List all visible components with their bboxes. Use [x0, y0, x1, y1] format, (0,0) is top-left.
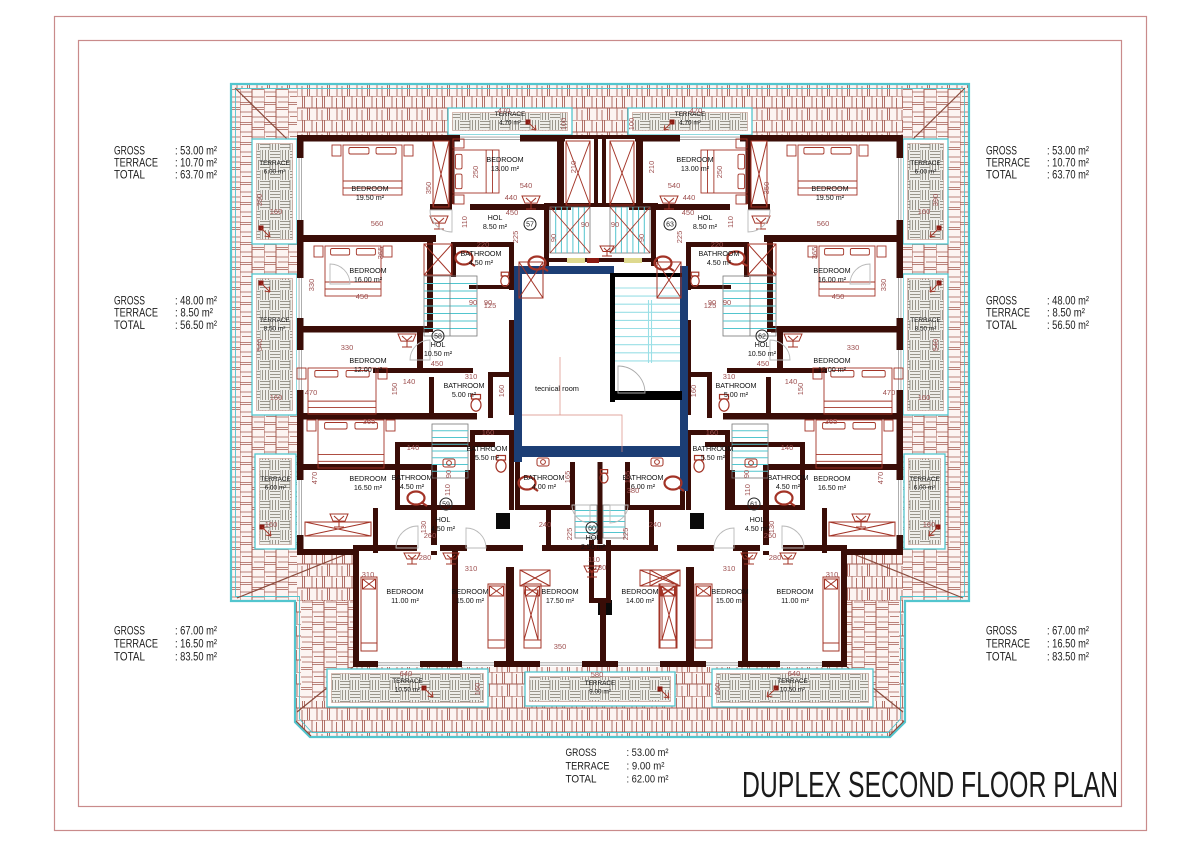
svg-text:BEDROOM: BEDROOM: [711, 587, 748, 596]
svg-text:5.00 m²: 5.00 m²: [724, 390, 749, 399]
svg-text:450: 450: [682, 208, 695, 217]
svg-text:470: 470: [876, 472, 885, 485]
svg-text:TERRACE: TERRACE: [259, 317, 290, 324]
svg-text:110: 110: [443, 484, 452, 496]
svg-text:640: 640: [400, 669, 413, 678]
svg-text:BEDROOM: BEDROOM: [676, 155, 713, 164]
svg-text:540: 540: [931, 339, 940, 352]
svg-text:160: 160: [713, 683, 722, 696]
svg-text:BATHROOM: BATHROOM: [693, 444, 734, 453]
svg-text:90: 90: [484, 298, 492, 307]
svg-text:110: 110: [726, 216, 735, 228]
svg-text:TOTAL: TOTAL: [566, 774, 597, 786]
svg-text:365: 365: [363, 417, 376, 426]
svg-text:220: 220: [477, 240, 490, 249]
svg-text:8.50 m²: 8.50 m²: [264, 326, 286, 333]
svg-text:4.50 m²: 4.50 m²: [707, 258, 732, 267]
svg-text:390: 390: [255, 194, 264, 207]
svg-text:: 9.00 m²: : 9.00 m²: [627, 760, 665, 772]
svg-text:11.00 m²: 11.00 m²: [391, 596, 419, 605]
svg-text:310: 310: [723, 372, 736, 381]
svg-text:240: 240: [539, 520, 552, 529]
svg-text:100: 100: [627, 118, 636, 131]
svg-text:160: 160: [473, 683, 482, 696]
svg-text:BEDROOM: BEDROOM: [351, 184, 388, 193]
svg-text:280: 280: [419, 553, 432, 562]
svg-text:540: 540: [520, 181, 533, 190]
svg-text:8.50 m²: 8.50 m²: [483, 222, 508, 231]
svg-text:16.50 m²: 16.50 m²: [354, 483, 383, 492]
svg-text:310: 310: [826, 570, 839, 579]
svg-text:HOL: HOL: [488, 213, 503, 222]
svg-text:16.50 m²: 16.50 m²: [818, 483, 847, 492]
svg-text:470: 470: [690, 106, 703, 115]
svg-text:BEDROOM: BEDROOM: [541, 587, 578, 596]
svg-text:15.00 m²: 15.00 m²: [456, 596, 485, 605]
svg-text:5.50 m²: 5.50 m²: [701, 453, 726, 462]
svg-text:5.00 m²: 5.00 m²: [452, 390, 477, 399]
svg-text:63: 63: [666, 222, 674, 229]
svg-text:350: 350: [424, 182, 433, 195]
svg-text:: 16.50 m²: : 16.50 m²: [175, 637, 217, 651]
svg-text:440: 440: [505, 193, 518, 202]
svg-text:4.50 m²: 4.50 m²: [400, 482, 425, 491]
svg-text:440: 440: [683, 193, 696, 202]
svg-text:540: 540: [668, 181, 681, 190]
svg-text:GROSS: GROSS: [986, 624, 1017, 638]
svg-text:: 67.00 m²: : 67.00 m²: [175, 624, 217, 638]
svg-text:BATHROOM: BATHROOM: [461, 249, 502, 258]
svg-text:450: 450: [832, 292, 845, 301]
svg-text:140: 140: [403, 377, 416, 386]
svg-text:225: 225: [621, 528, 630, 541]
svg-text:TERRACE: TERRACE: [259, 160, 290, 167]
svg-text:BATHROOM: BATHROOM: [444, 381, 485, 390]
svg-text:2.50 m²: 2.50 m²: [581, 542, 606, 551]
svg-text:4.50 m²: 4.50 m²: [469, 258, 494, 267]
svg-text:GROSS: GROSS: [566, 747, 597, 759]
svg-text:110: 110: [460, 216, 469, 228]
svg-text:160: 160: [497, 385, 506, 398]
svg-text:10.50 m²: 10.50 m²: [748, 349, 777, 358]
svg-text:160: 160: [918, 393, 931, 402]
svg-text:450: 450: [506, 208, 519, 217]
svg-text:: 67.00 m²: : 67.00 m²: [1047, 624, 1089, 638]
svg-text:13.00 m²: 13.00 m²: [491, 164, 520, 173]
svg-text:BATHROOM: BATHROOM: [524, 473, 565, 482]
svg-text:TOTAL: TOTAL: [986, 318, 1017, 332]
svg-text:310: 310: [362, 570, 375, 579]
svg-text:240: 240: [649, 520, 662, 529]
svg-text:BEDROOM: BEDROOM: [813, 266, 850, 275]
svg-text:12.00 m²: 12.00 m²: [354, 365, 383, 374]
svg-text:450: 450: [431, 359, 444, 368]
svg-text:140: 140: [407, 443, 420, 452]
svg-text:: 56.50 m²: : 56.50 m²: [1047, 318, 1089, 332]
svg-text:150: 150: [390, 383, 399, 396]
svg-text:DUPLEX SECOND FLOOR PLAN: DUPLEX SECOND FLOOR PLAN: [742, 764, 1118, 805]
svg-text:BATHROOM: BATHROOM: [467, 444, 508, 453]
svg-text:BATHROOM: BATHROOM: [699, 249, 740, 258]
svg-text:BEDROOM: BEDROOM: [811, 184, 848, 193]
svg-text:4.70 m²: 4.70 m²: [679, 120, 701, 127]
svg-text:BEDROOM: BEDROOM: [349, 356, 386, 365]
svg-text:: 63.70 m²: : 63.70 m²: [1047, 168, 1089, 182]
svg-text:6.00 m²: 6.00 m²: [915, 169, 937, 176]
svg-text:90: 90: [637, 234, 646, 242]
svg-text:310: 310: [465, 372, 478, 381]
svg-text:BEDROOM: BEDROOM: [451, 587, 488, 596]
svg-text:BEDROOM: BEDROOM: [349, 474, 386, 483]
svg-text:130: 130: [767, 521, 776, 534]
svg-text:TERRACE: TERRACE: [909, 476, 940, 483]
svg-text:160: 160: [270, 393, 283, 402]
svg-text:TERRACE: TERRACE: [566, 760, 610, 772]
svg-text:BEDROOM: BEDROOM: [776, 587, 813, 596]
svg-text:BEDROOM: BEDROOM: [813, 474, 850, 483]
svg-text:160: 160: [270, 207, 283, 216]
svg-text:TOTAL: TOTAL: [114, 650, 145, 664]
svg-text:TERRACE: TERRACE: [777, 678, 808, 685]
svg-text:560: 560: [371, 219, 384, 228]
svg-text:165: 165: [563, 471, 572, 484]
svg-text:12.00 m²: 12.00 m²: [818, 365, 847, 374]
svg-text:10.50 m²: 10.50 m²: [424, 349, 453, 358]
svg-text:BEDROOM: BEDROOM: [813, 356, 850, 365]
svg-text:: 83.50 m²: : 83.50 m²: [1047, 650, 1089, 664]
svg-text:61: 61: [750, 502, 758, 509]
svg-text:365: 365: [825, 417, 838, 426]
svg-text:390: 390: [931, 194, 940, 207]
svg-text:350: 350: [762, 182, 771, 195]
svg-text:150: 150: [796, 383, 805, 396]
svg-text:210: 210: [647, 161, 656, 174]
svg-text:225: 225: [511, 231, 520, 244]
svg-text:: 83.50 m²: : 83.50 m²: [175, 650, 217, 664]
svg-text:TERRACE: TERRACE: [910, 317, 941, 324]
svg-text:17.50 m²: 17.50 m²: [546, 596, 575, 605]
svg-text:100: 100: [559, 118, 568, 131]
svg-text:tecnical room: tecnical room: [535, 384, 579, 393]
svg-text:: 53.00 m²: : 53.00 m²: [627, 747, 669, 759]
svg-text:6.00 m²: 6.00 m²: [264, 169, 286, 176]
svg-text:450: 450: [356, 292, 369, 301]
svg-text:BATHROOM: BATHROOM: [768, 473, 809, 482]
svg-text:365: 365: [810, 247, 819, 260]
svg-text:90: 90: [469, 298, 477, 307]
svg-text:130: 130: [419, 521, 428, 534]
svg-text:330: 330: [341, 343, 354, 352]
svg-text:160: 160: [706, 428, 719, 437]
svg-text:580: 580: [591, 670, 604, 679]
svg-text:HOL: HOL: [431, 340, 446, 349]
svg-text:6.00 m²: 6.00 m²: [914, 485, 936, 492]
svg-text:6.00 m²: 6.00 m²: [265, 485, 287, 492]
svg-text:TERRACE: TERRACE: [585, 680, 616, 687]
svg-text:BATHROOM: BATHROOM: [392, 473, 433, 482]
svg-text:330: 330: [307, 279, 316, 292]
svg-text:BEDROOM: BEDROOM: [349, 266, 386, 275]
svg-text:10.50 m²: 10.50 m²: [780, 687, 805, 694]
svg-text:470: 470: [310, 472, 319, 485]
svg-text:90: 90: [742, 470, 751, 478]
svg-text:11.00 m²: 11.00 m²: [781, 596, 809, 605]
svg-text:90: 90: [444, 470, 453, 478]
svg-text:470: 470: [498, 106, 511, 115]
svg-text:250: 250: [715, 166, 724, 179]
svg-text:BEDROOM: BEDROOM: [386, 587, 423, 596]
svg-text:TOTAL: TOTAL: [986, 650, 1017, 664]
svg-text:16.00 m²: 16.00 m²: [354, 275, 383, 284]
svg-text:330: 330: [879, 279, 888, 292]
svg-text:4.00 m²: 4.00 m²: [532, 482, 557, 491]
svg-text:225: 225: [565, 528, 574, 541]
svg-text:140: 140: [781, 443, 794, 452]
svg-text:225: 225: [675, 231, 684, 244]
svg-text:HOL: HOL: [755, 340, 770, 349]
svg-text:GROSS: GROSS: [114, 624, 145, 638]
svg-text:90: 90: [708, 298, 716, 307]
svg-text:TERRACE: TERRACE: [392, 678, 423, 685]
svg-text:450: 450: [757, 359, 770, 368]
svg-text:640: 640: [788, 669, 801, 678]
svg-text:90: 90: [581, 220, 589, 229]
svg-text:470: 470: [883, 388, 896, 397]
svg-text:16.00 m²: 16.00 m²: [818, 275, 847, 284]
svg-text:TERRACE: TERRACE: [114, 637, 158, 651]
svg-text:58: 58: [434, 334, 442, 341]
svg-text:TERRACE: TERRACE: [910, 160, 941, 167]
svg-text:4.70 m²: 4.70 m²: [499, 120, 521, 127]
svg-text:BEDROOM: BEDROOM: [621, 587, 658, 596]
svg-text:310: 310: [465, 564, 478, 573]
svg-text:90: 90: [723, 298, 731, 307]
svg-text:5.50 m²: 5.50 m²: [475, 453, 500, 462]
svg-text:15.00 m²: 15.00 m²: [716, 596, 745, 605]
svg-text:4.50 m²: 4.50 m²: [776, 482, 801, 491]
svg-text:180: 180: [594, 563, 607, 572]
svg-text:62: 62: [758, 334, 766, 341]
svg-text:10.50 m²: 10.50 m²: [395, 687, 420, 694]
svg-text:350: 350: [554, 642, 567, 651]
svg-text:60: 60: [588, 526, 596, 533]
svg-text:TOTAL: TOTAL: [114, 168, 145, 182]
svg-text:9.00 m²: 9.00 m²: [589, 689, 611, 696]
svg-text:TOTAL: TOTAL: [114, 318, 145, 332]
svg-text:160: 160: [923, 520, 936, 529]
svg-text:14.00 m²: 14.00 m²: [626, 596, 655, 605]
svg-text:470: 470: [305, 388, 318, 397]
svg-text:HOL: HOL: [436, 515, 451, 524]
svg-text:BEDROOM: BEDROOM: [486, 155, 523, 164]
svg-text:380: 380: [627, 486, 640, 495]
svg-text:540: 540: [255, 339, 264, 352]
svg-text:19.50 m²: 19.50 m²: [356, 193, 385, 202]
svg-text:365: 365: [376, 247, 385, 260]
svg-text:TERRACE: TERRACE: [260, 476, 291, 483]
svg-text:TERRACE: TERRACE: [986, 637, 1030, 651]
svg-text:90: 90: [549, 234, 558, 242]
svg-text:: 63.70 m²: : 63.70 m²: [175, 168, 217, 182]
svg-text:160: 160: [918, 207, 931, 216]
svg-text:280: 280: [769, 553, 782, 562]
svg-text:160: 160: [689, 385, 698, 398]
svg-text:160: 160: [265, 520, 278, 529]
svg-text:90: 90: [611, 220, 619, 229]
svg-text:165: 165: [623, 471, 632, 484]
svg-text:57: 57: [526, 222, 534, 229]
svg-text:HOL: HOL: [698, 213, 713, 222]
svg-text:TOTAL: TOTAL: [986, 168, 1017, 182]
svg-text:HOL: HOL: [750, 515, 765, 524]
svg-text:560: 560: [817, 219, 830, 228]
svg-text:BATHROOM: BATHROOM: [716, 381, 757, 390]
svg-text:8.50 m²: 8.50 m²: [915, 326, 937, 333]
svg-text:110: 110: [743, 484, 752, 496]
svg-text:19.50 m²: 19.50 m²: [816, 193, 845, 202]
svg-text:160: 160: [482, 428, 495, 437]
svg-text:: 16.50 m²: : 16.50 m²: [1047, 637, 1089, 651]
svg-text:310: 310: [723, 564, 736, 573]
svg-text:13.00 m²: 13.00 m²: [681, 164, 710, 173]
svg-text:330: 330: [847, 343, 860, 352]
svg-text:: 56.50 m²: : 56.50 m²: [175, 318, 217, 332]
svg-text:8.50 m²: 8.50 m²: [693, 222, 718, 231]
svg-text:220: 220: [711, 240, 724, 249]
svg-text:250: 250: [471, 166, 480, 179]
svg-text:210: 210: [569, 161, 578, 174]
svg-text:: 62.00 m²: : 62.00 m²: [627, 774, 669, 786]
svg-text:59: 59: [442, 502, 450, 509]
